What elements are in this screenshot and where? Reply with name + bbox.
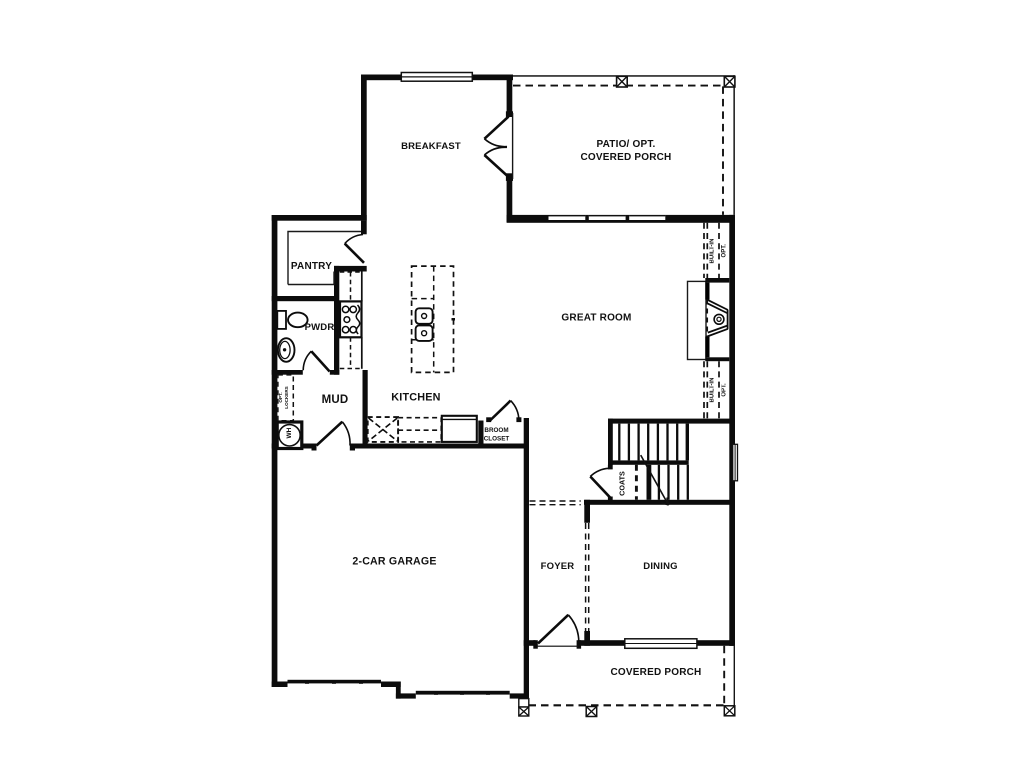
svg-text:COVERED PORCH: COVERED PORCH <box>611 667 702 678</box>
svg-text:MUD: MUD <box>322 394 349 406</box>
svg-text:BUILT-IN: BUILT-IN <box>710 378 716 403</box>
svg-text:BUILT-IN: BUILT-IN <box>710 239 716 264</box>
svg-text:GREAT ROOM: GREAT ROOM <box>561 312 631 323</box>
svg-text:WH: WH <box>286 427 293 438</box>
svg-text:COATS: COATS <box>618 471 627 496</box>
svg-text:PANTRY: PANTRY <box>291 261 332 272</box>
svg-text:CLOSET: CLOSET <box>484 435 510 442</box>
svg-text:PATIO/ OPT.: PATIO/ OPT. <box>596 139 655 150</box>
svg-text:OPT.: OPT. <box>722 244 728 258</box>
svg-text:KITCHEN: KITCHEN <box>391 392 440 404</box>
svg-text:LOCKERS: LOCKERS <box>284 386 289 408</box>
svg-text:DINING: DINING <box>643 561 677 572</box>
svg-text:BREAKFAST: BREAKFAST <box>401 141 461 152</box>
svg-text:OPT.: OPT. <box>722 383 728 397</box>
svg-text:FOYER: FOYER <box>541 561 575 572</box>
svg-text:BROOM: BROOM <box>484 427 508 434</box>
svg-text:OPT.: OPT. <box>278 392 283 402</box>
svg-text:2-CAR GARAGE: 2-CAR GARAGE <box>352 555 436 567</box>
svg-text:PWDR: PWDR <box>305 322 335 333</box>
svg-text:COVERED PORCH: COVERED PORCH <box>581 152 672 163</box>
